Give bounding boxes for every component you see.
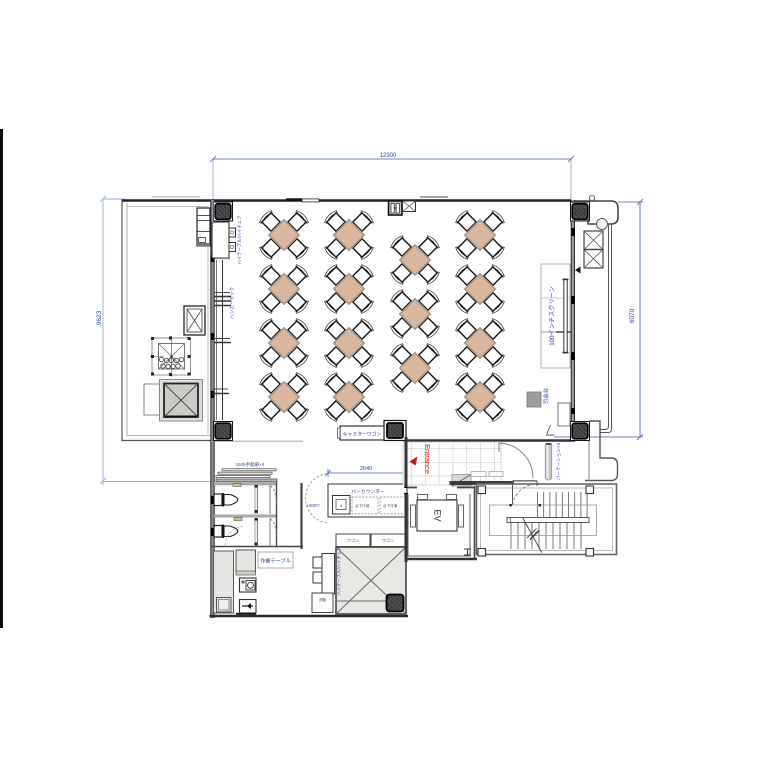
svg-text:2640: 2640	[360, 466, 372, 472]
svg-text:12300: 12300	[380, 153, 397, 159]
svg-text:1845手動扉×4: 1845手動扉×4	[236, 461, 265, 468]
svg-text:EV: EV	[433, 509, 443, 521]
svg-text:司会台: 司会台	[542, 388, 550, 404]
svg-text:ワゴン: ワゴン	[347, 537, 359, 543]
svg-text:台下冷蔵: 台下冷蔵	[355, 503, 370, 508]
svg-text:作業テーブル: 作業テーブル	[260, 557, 291, 565]
svg-text:洗機: 洗機	[319, 597, 326, 602]
svg-text:ハンガーラック: ハンガーラック	[229, 287, 236, 319]
svg-text:9623: 9623	[96, 310, 103, 325]
svg-text:キャスターワゴン: キャスターワゴン	[343, 431, 382, 438]
svg-text:Entrance: Entrance	[423, 444, 432, 474]
svg-text:ハイテーブル/ハイチェア: ハイテーブル/ハイチェア	[236, 215, 243, 265]
svg-text:バーカウンター: バーカウンター	[351, 488, 385, 495]
svg-text:6070: 6070	[629, 308, 636, 323]
svg-text:ハイテーブル/ハイチェア: ハイテーブル/ハイチェア	[336, 546, 343, 596]
svg-text:+200▽: +200▽	[306, 503, 320, 508]
svg-text:台下冷凍: 台下冷凍	[383, 503, 398, 508]
svg-text:100インチスクリーン: 100インチスクリーン	[549, 286, 556, 346]
svg-text:ワゴン: ワゴン	[382, 537, 394, 543]
